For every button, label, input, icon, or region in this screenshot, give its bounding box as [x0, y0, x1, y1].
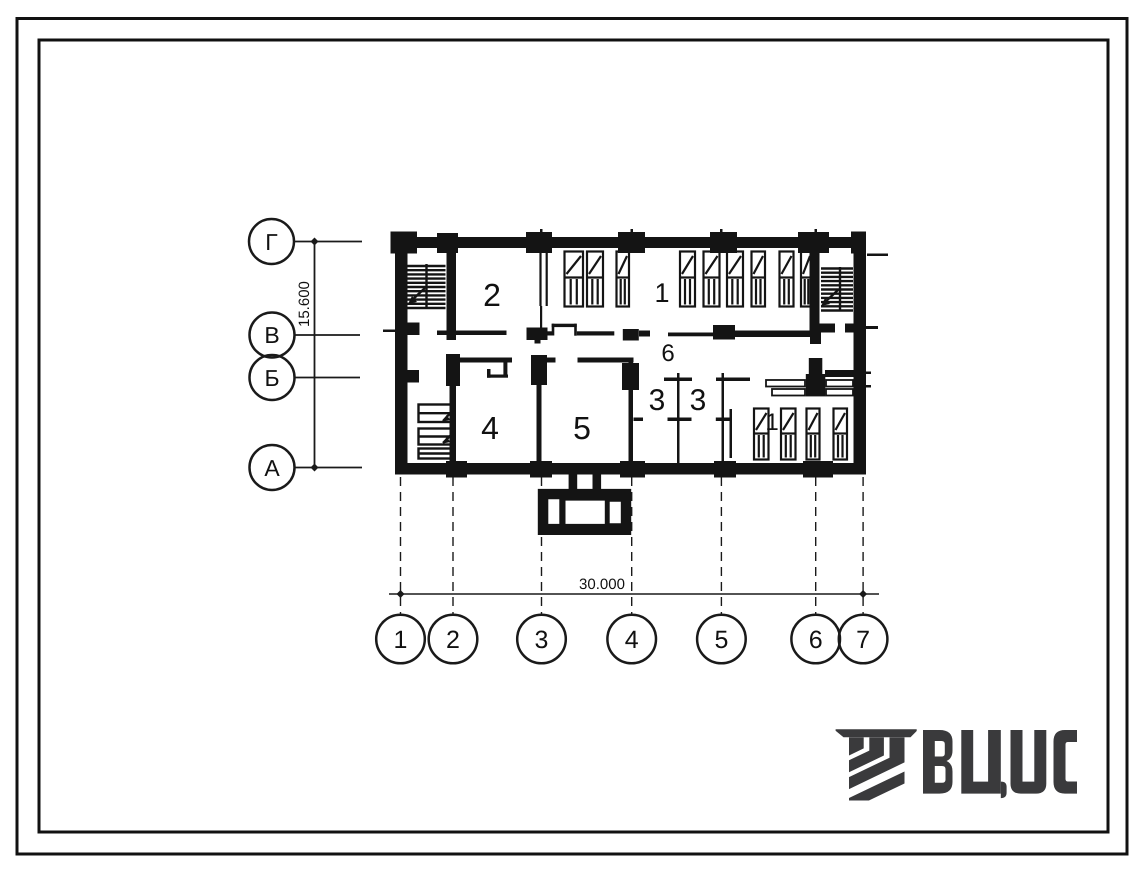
- svg-text:Б: Б: [264, 365, 279, 391]
- svg-text:5: 5: [714, 626, 728, 654]
- svg-text:4: 4: [625, 626, 639, 654]
- svg-text:2: 2: [483, 277, 501, 313]
- svg-text:3: 3: [535, 626, 549, 654]
- svg-text:4: 4: [481, 410, 499, 446]
- svg-text:3: 3: [649, 384, 666, 417]
- svg-text:Г: Г: [265, 229, 278, 255]
- svg-text:1: 1: [654, 278, 669, 308]
- svg-text:15.600: 15.600: [296, 281, 313, 327]
- svg-text:1: 1: [394, 626, 408, 654]
- svg-text:А: А: [264, 455, 280, 481]
- svg-text:2: 2: [446, 626, 460, 654]
- svg-text:3: 3: [690, 384, 707, 417]
- svg-text:6: 6: [661, 340, 674, 367]
- svg-text:6: 6: [809, 626, 823, 654]
- svg-text:30.000: 30.000: [579, 576, 625, 593]
- svg-text:1: 1: [765, 409, 778, 436]
- svg-text:5: 5: [573, 410, 591, 446]
- svg-text:7: 7: [856, 626, 870, 654]
- svg-text:В: В: [264, 322, 279, 348]
